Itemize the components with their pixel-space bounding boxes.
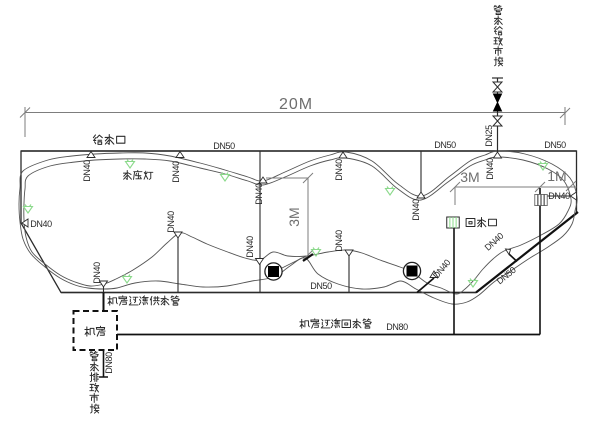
svg-text:DN50: DN50 bbox=[213, 141, 235, 151]
svg-text:3M: 3M bbox=[286, 207, 302, 226]
svg-text:DN40: DN40 bbox=[30, 219, 52, 229]
svg-text:DN50: DN50 bbox=[310, 281, 332, 291]
svg-text:DN40: DN40 bbox=[334, 230, 344, 252]
svg-text:DN25: DN25 bbox=[484, 125, 494, 147]
svg-text:DN40: DN40 bbox=[92, 262, 102, 284]
svg-text:DN40: DN40 bbox=[171, 161, 181, 183]
svg-text:DN50: DN50 bbox=[544, 140, 566, 150]
svg-text:20M: 20M bbox=[279, 96, 313, 113]
svg-text:DN80: DN80 bbox=[386, 322, 408, 332]
svg-text:DN40: DN40 bbox=[82, 160, 92, 182]
svg-text:DN80: DN80 bbox=[104, 352, 114, 374]
svg-text:1M: 1M bbox=[547, 168, 566, 184]
svg-text:3M: 3M bbox=[460, 169, 479, 185]
svg-text:DN40: DN40 bbox=[485, 158, 495, 180]
svg-text:DN40: DN40 bbox=[245, 236, 255, 258]
svg-text:DN40: DN40 bbox=[548, 191, 570, 201]
svg-text:DN40: DN40 bbox=[166, 211, 176, 233]
svg-text:DN40: DN40 bbox=[254, 183, 264, 205]
svg-text:DN40: DN40 bbox=[334, 159, 344, 181]
svg-text:DN40: DN40 bbox=[411, 199, 421, 221]
svg-text:DN50: DN50 bbox=[434, 140, 456, 150]
